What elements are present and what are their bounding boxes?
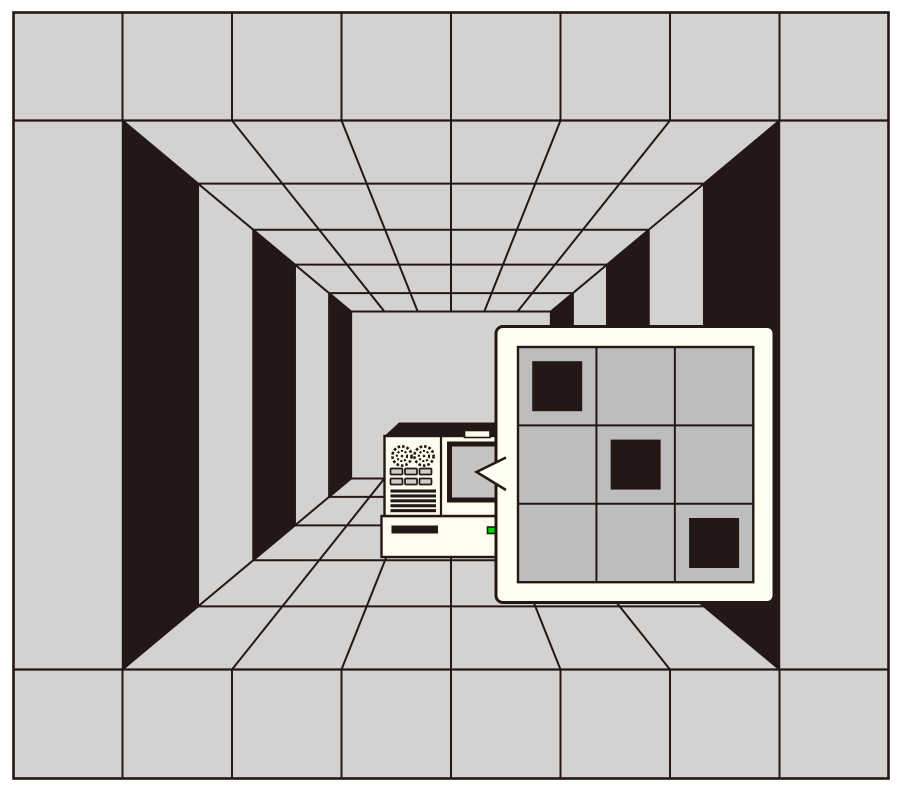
illustration-canvas — [0, 0, 902, 791]
computer-base — [382, 516, 502, 557]
magnified-screen-grid — [518, 347, 753, 582]
door-opening-left — [253, 230, 295, 560]
panel-button — [405, 469, 417, 475]
computer-illustration — [382, 423, 503, 558]
drive-slot — [392, 526, 439, 534]
lid-handle-slot — [465, 431, 491, 438]
panel-button — [405, 479, 417, 485]
filled-square-r0c0 — [532, 361, 582, 411]
door-opening-left — [123, 121, 199, 670]
filled-square-r2c2 — [689, 518, 739, 568]
panel-button — [391, 479, 403, 485]
door-opening-left — [329, 293, 351, 497]
panel-button — [420, 479, 432, 485]
panel-button — [391, 469, 403, 475]
panel-button — [420, 469, 432, 475]
screen-magnifier-panel — [477, 327, 775, 603]
filled-square-r1c1 — [611, 440, 661, 490]
corridor-computer-illustration — [0, 0, 902, 791]
